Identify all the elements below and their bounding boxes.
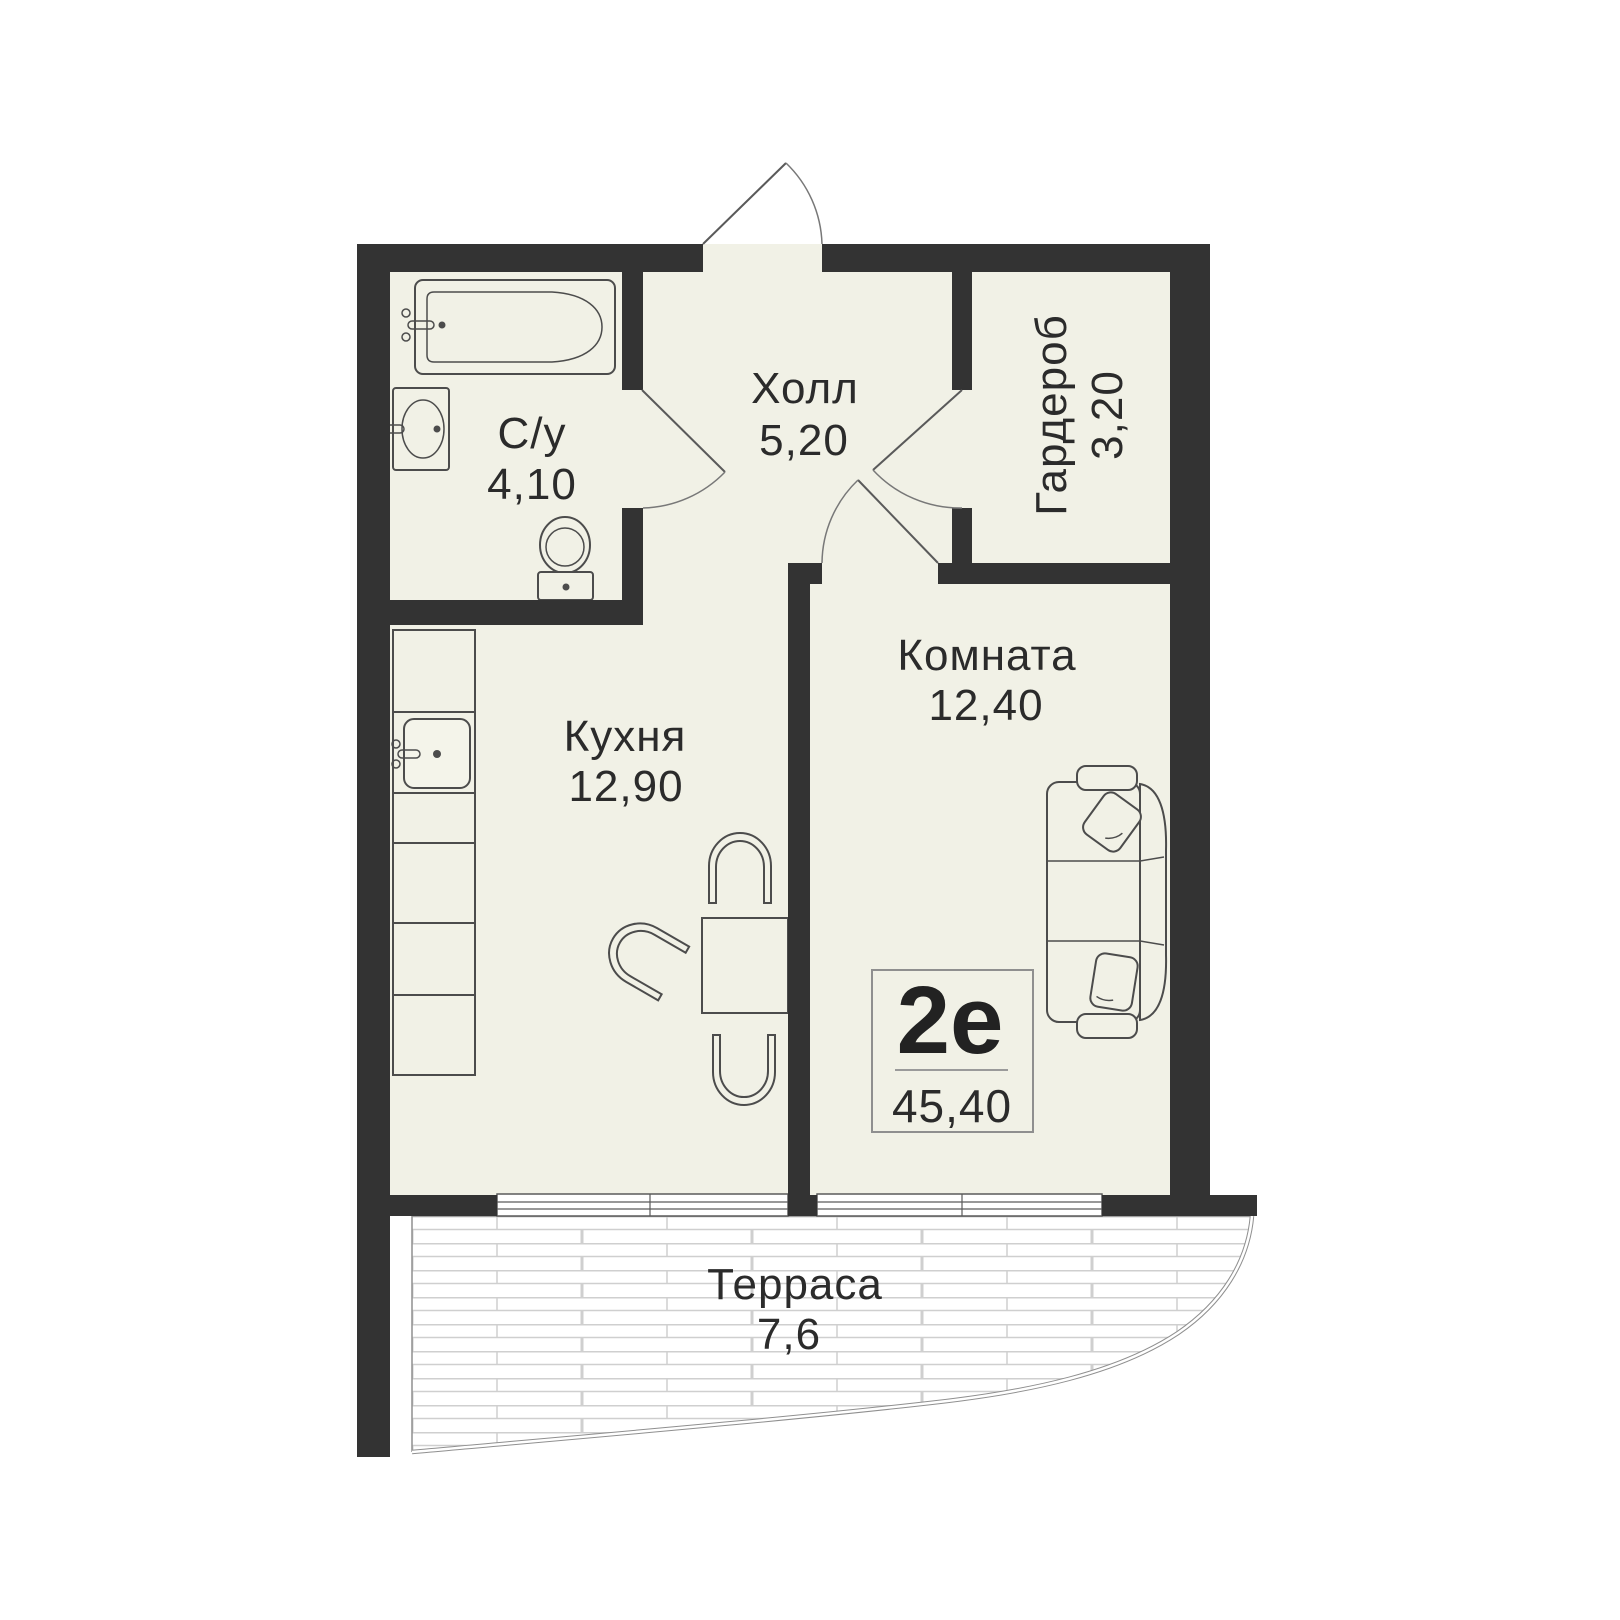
hall-area: 5,20 [759, 416, 849, 465]
sofa-pillow-icon [1089, 952, 1139, 1012]
wall-bathroom-upper [622, 272, 643, 390]
wall-wardrobe-stub [952, 508, 972, 563]
badge-type-label: 2е [897, 967, 1004, 1074]
sofa-icon [1047, 766, 1166, 1038]
kitchen-name: Кухня [564, 712, 687, 761]
wall-bottom-stub [788, 1195, 817, 1216]
wall-top-left [357, 244, 703, 272]
wall-right [1170, 244, 1210, 1197]
badge-total-area: 45,40 [892, 1080, 1012, 1132]
entrance-threshold [703, 244, 822, 272]
terrace-name: Терраса [707, 1260, 883, 1309]
window-kitchen [497, 1194, 788, 1216]
wardrobe-name: Гардероб [1027, 314, 1076, 516]
floorplan-svg: Холл 5,20 С/у 4,10 Гардероб 3,20 Комната… [0, 0, 1620, 1620]
bathroom-name: С/у [498, 409, 567, 458]
window-room [817, 1194, 1102, 1216]
wall-wardrobe-upper [952, 272, 972, 390]
toilet-icon [538, 517, 593, 600]
wall-bottom-right [1102, 1195, 1257, 1216]
apartment-type-badge: 2е 45,40 [872, 967, 1033, 1132]
kitchen-sink-icon [392, 719, 470, 788]
room-area: 12,40 [928, 681, 1043, 730]
dining-table [702, 918, 788, 1013]
wall-bottom-left [357, 1195, 497, 1216]
wall-bathroom-bottom [357, 600, 643, 625]
hall-name: Холл [751, 364, 859, 413]
kitchen-counter [393, 630, 475, 1075]
bathtub-icon [402, 280, 615, 374]
floorplan-page: Холл 5,20 С/у 4,10 Гардероб 3,20 Комната… [0, 0, 1620, 1620]
wardrobe-area: 3,20 [1083, 370, 1132, 460]
terrace-area-label: 7,6 [757, 1310, 821, 1359]
wall-room-top [938, 563, 1170, 584]
wall-top-right [822, 244, 1210, 272]
kitchen-area: 12,90 [568, 762, 683, 811]
wall-left [357, 244, 390, 1457]
room-name: Комната [897, 631, 1076, 680]
wall-room-left [788, 563, 810, 1195]
bathroom-area: 4,10 [487, 460, 577, 509]
room-label-kitchen: Кухня 12,90 [564, 712, 687, 811]
